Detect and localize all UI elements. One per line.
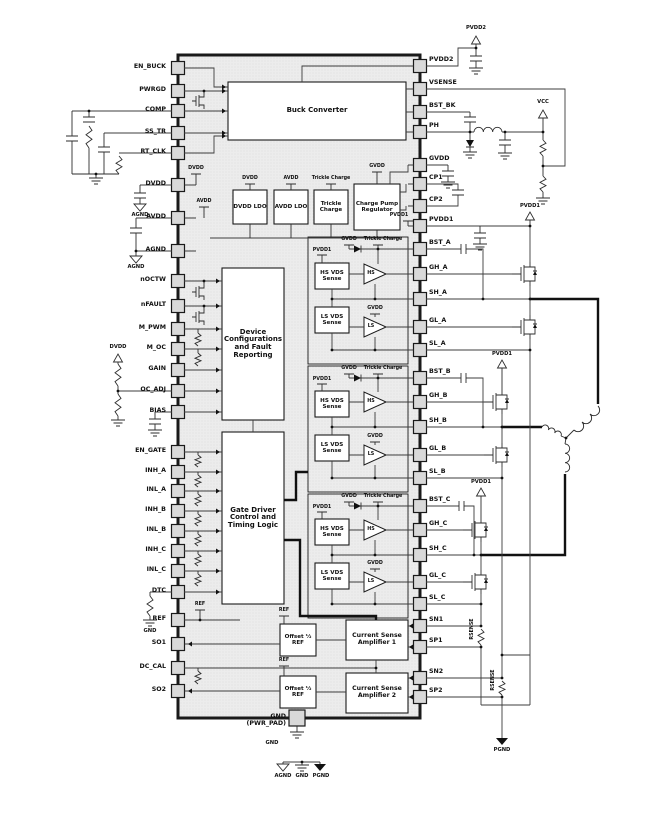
charge-pump-block [354,184,400,230]
pin [414,321,427,334]
pin [172,685,185,698]
pin [414,449,427,462]
pin [414,549,427,562]
offset-ref-block-1 [280,624,316,656]
junction-dot [88,110,91,113]
pin [172,485,185,498]
pin [172,525,185,538]
pin [172,662,185,675]
pin [414,672,427,685]
junction-dot [480,646,483,649]
hs-vds-sense-block [315,519,349,545]
pin [414,598,427,611]
pin [414,220,427,233]
pin [172,586,185,599]
junction-dot [374,298,377,301]
pin [172,466,185,479]
pin [414,178,427,191]
junction-dot [331,477,334,480]
pin [172,505,185,518]
gate-driver-block [222,432,284,604]
pin [414,396,427,409]
pin [172,105,185,118]
buck-converter-block [228,82,406,140]
pin [414,293,427,306]
junction-dot [501,677,504,680]
pin [172,638,185,651]
pin [172,147,185,160]
csa1-block [346,620,408,660]
junction-dot [482,298,485,301]
offset-ref-block-2 [280,676,316,708]
junction-dot [473,554,476,557]
junction-dot [331,298,334,301]
junction-dot [565,437,568,440]
junction-dot [135,250,138,253]
pin [414,421,427,434]
ls-vds-sense-block [315,307,349,333]
pin [414,126,427,139]
junction-dot [374,426,377,429]
junction-dot [203,305,206,308]
pin [414,641,427,654]
schematic-canvas [0,0,648,820]
junction-dot [529,298,532,301]
junction-dot [542,165,545,168]
hs-vds-sense-block [315,391,349,417]
junction-dot [203,90,206,93]
junction-dot [501,477,504,480]
junction-dot [377,377,380,380]
junction-dot [377,505,380,508]
pin [172,245,185,258]
junction-dot [529,225,532,228]
pin [172,323,185,336]
pin [172,385,185,398]
junction-dot [95,173,98,176]
pin [172,212,185,225]
junction-dot [501,426,504,429]
junction-dot [331,603,334,606]
junction-dot [374,477,377,480]
junction-dot [501,654,504,657]
pin [172,446,185,459]
pin [172,565,185,578]
junction-dot [117,390,120,393]
pin [414,200,427,213]
pin [172,275,185,288]
ls-vds-sense-block [315,435,349,461]
junction-dot [199,619,202,622]
block-diagram: EN_BUCKPWRGDCOMPSS_TRRT_CLKDVDDAVDDAGNDn… [0,0,648,820]
junction-dot [475,47,478,50]
pin [414,524,427,537]
junction-dot [482,426,485,429]
pin [414,472,427,485]
junction-dot [542,131,545,134]
pin [172,85,185,98]
dvdd-ldo-block [233,190,267,224]
pin [172,406,185,419]
pin [414,344,427,357]
junction-dot [331,554,334,557]
pin [172,62,185,75]
junction-dot [374,349,377,352]
pin [172,179,185,192]
junction-dot [469,131,472,134]
junction-dot [480,554,483,557]
pin [414,372,427,385]
pin [414,576,427,589]
junction-dot [377,248,380,251]
junction-dot [331,426,334,429]
pin [414,268,427,281]
junction-dot [331,349,334,352]
junction-dot [203,280,206,283]
pin [172,300,185,313]
pin [172,343,185,356]
pin [414,243,427,256]
junction-dot [374,554,377,557]
csa2-block [346,673,408,713]
pin [414,60,427,73]
junction-dot [529,349,532,352]
pin-pwr-pad [289,710,305,726]
chip-body [178,55,420,718]
pin [172,364,185,377]
pin [414,500,427,513]
pin [414,691,427,704]
hs-vds-sense-block [315,263,349,289]
junction-dot [504,131,507,134]
device-config-block [222,268,284,420]
junction-dot [374,603,377,606]
pin [414,83,427,96]
pin [414,106,427,119]
ls-vds-sense-block [315,563,349,589]
pin [414,620,427,633]
pin [172,614,185,627]
junction-dot [501,696,504,699]
junction-dot [301,761,304,764]
junction-dot [375,667,378,670]
pin [172,545,185,558]
pin [172,127,185,140]
trickle-charge-block [314,190,348,224]
pin [414,159,427,172]
junction-dot [480,625,483,628]
junction-dot [480,603,483,606]
avdd-ldo-block [274,190,308,224]
